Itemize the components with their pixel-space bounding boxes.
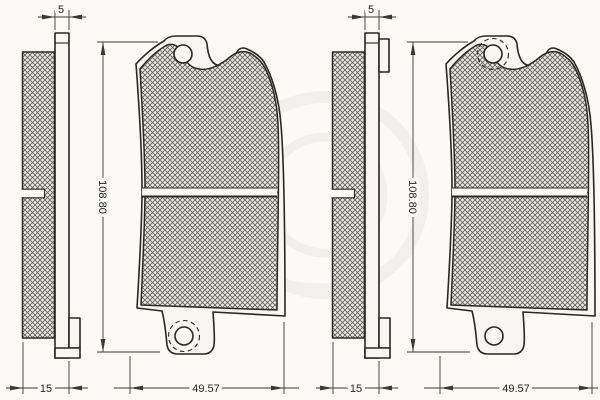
dim-left-plate-thickness: 5 [58, 4, 64, 16]
dim-left-pad-width: 49.57 [192, 383, 220, 395]
dim-left-total-thickness: 15 [40, 383, 52, 395]
dim-right-plate-thickness: 5 [368, 4, 374, 16]
dim-left-pad-height: 108.80 [96, 180, 108, 214]
drawing-canvas: 5 15 108.80 49.57 5 15 108.80 49.57 [0, 0, 600, 400]
left-pad-side-view [22, 33, 81, 358]
dim-right-pad-height: 108.80 [406, 180, 418, 214]
dim-right-pad-width: 49.57 [502, 383, 530, 395]
dim-right-total-thickness: 15 [350, 383, 362, 395]
left-pad-bottom-hole [175, 327, 193, 345]
brake-pad-technical-drawing: 5 15 108.80 49.57 5 15 108.80 49.57 [0, 0, 600, 400]
left-pad-top-hole [174, 45, 192, 63]
right-pad-top-hole [484, 45, 502, 63]
right-pad-front-view [446, 36, 595, 354]
right-pad-retaining-clip [379, 39, 389, 72]
left-pad-front-view [136, 36, 285, 354]
right-pad-bottom-hole [485, 327, 503, 345]
